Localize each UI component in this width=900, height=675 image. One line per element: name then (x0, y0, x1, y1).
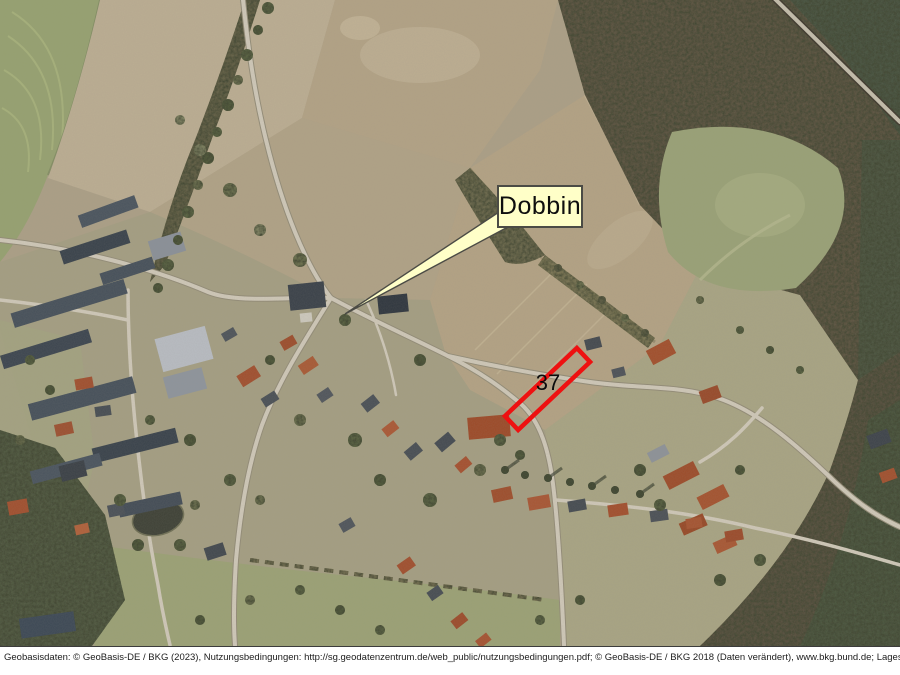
lageskizze-document: 37 Dobbin Geobasisdaten: © GeoBasis-DE /… (0, 0, 900, 675)
aerial-photo (0, 0, 900, 646)
parcel-number-label: 37 (531, 370, 565, 396)
place-callout-label: Dobbin (499, 192, 581, 221)
photo-grain (0, 0, 900, 646)
place-callout: Dobbin (497, 185, 583, 228)
attribution-text: Geobasisdaten: © GeoBasis-DE / BKG (2023… (4, 652, 900, 663)
aerial-map: 37 Dobbin (0, 0, 900, 646)
attribution-bar: Geobasisdaten: © GeoBasis-DE / BKG (2023… (0, 646, 900, 675)
